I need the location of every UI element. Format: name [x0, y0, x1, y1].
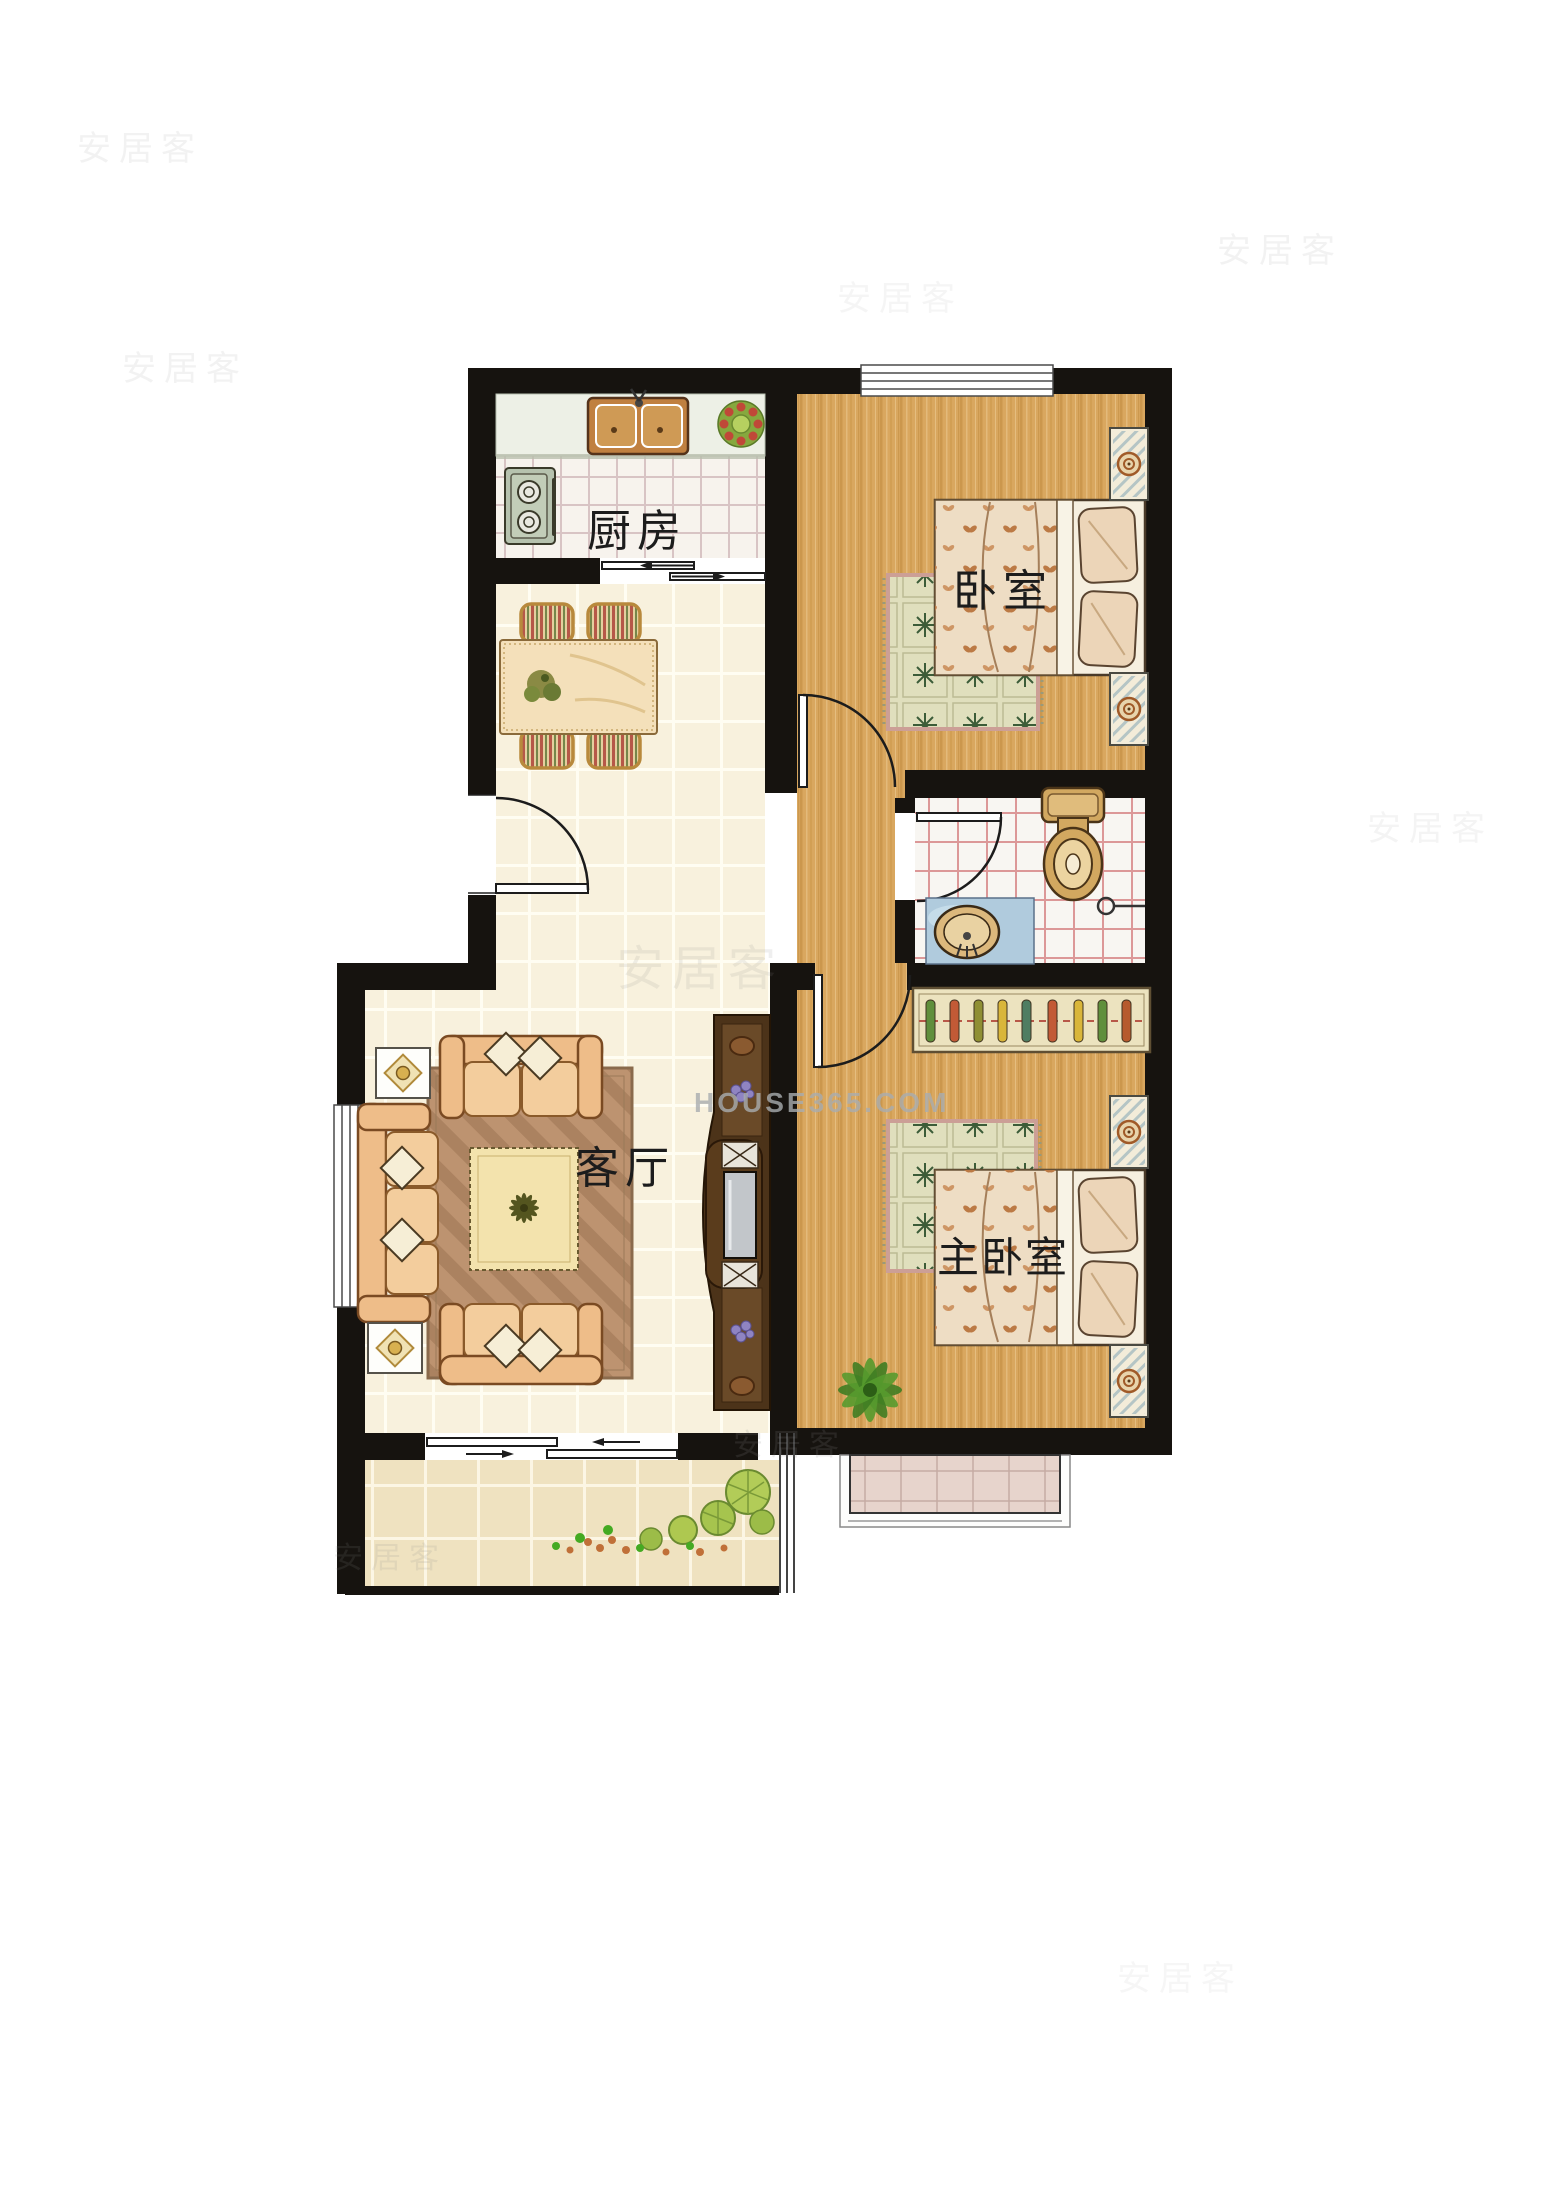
brand-watermark: 安居客	[1217, 232, 1343, 270]
balcony-outer-wall	[345, 1586, 779, 1595]
bathroom-sink	[926, 898, 1034, 964]
brand-watermark: 安居客	[837, 280, 963, 318]
kitchen-sliding-door	[600, 558, 765, 584]
brand-watermark: 安居客	[1367, 810, 1493, 848]
dining-chair	[588, 604, 640, 642]
decor-bowl	[730, 1377, 754, 1395]
dining-chair	[521, 604, 573, 642]
dining-chair	[521, 730, 573, 768]
kitchen-stove	[505, 468, 556, 544]
side-table-lamp	[368, 1323, 422, 1373]
floor-plan-page: 厨房	[0, 0, 1555, 2200]
master-nightstand	[1110, 1096, 1148, 1168]
bedroom-label: 卧室	[953, 567, 1053, 616]
wardrobe	[913, 988, 1150, 1052]
sofa-bottom	[440, 1304, 602, 1384]
brand-watermark: 安居客	[77, 130, 203, 168]
kitchen-plant	[718, 401, 764, 447]
decor-bowl	[730, 1037, 754, 1055]
sofa-left	[358, 1104, 438, 1322]
dining-table	[500, 640, 657, 734]
brand-watermark: 安居客	[616, 943, 784, 996]
side-table-lamp	[376, 1048, 430, 1098]
brand-watermark: 安居客	[122, 350, 248, 388]
master-nightstand	[1110, 1345, 1148, 1417]
brand-watermark: 安居客	[733, 1429, 847, 1462]
bedroom-nightstand	[1110, 428, 1148, 500]
balcony-sliding-door	[425, 1433, 678, 1460]
sofa-top	[440, 1033, 602, 1118]
bedroom-window	[861, 365, 1053, 396]
kitchen-sink	[588, 389, 688, 454]
bedroom-nightstand	[1110, 673, 1148, 745]
toilet	[1042, 788, 1104, 900]
master-bedroom-label: 主卧室	[937, 1235, 1069, 1282]
coffee-table	[470, 1148, 578, 1270]
living-room-label: 客厅	[575, 1144, 675, 1193]
kitchen-label: 厨房	[587, 507, 687, 556]
brand-watermark: 安居客	[1117, 1960, 1243, 1998]
floor-plan-drawing: 厨房	[0, 0, 1555, 2200]
tv-cabinet	[703, 1015, 770, 1410]
brand-watermark: 安居客	[333, 1542, 447, 1575]
master-bay-window	[840, 1455, 1070, 1527]
dining-chair	[588, 730, 640, 768]
site-watermark: HOUSE365.COM	[694, 1087, 949, 1118]
